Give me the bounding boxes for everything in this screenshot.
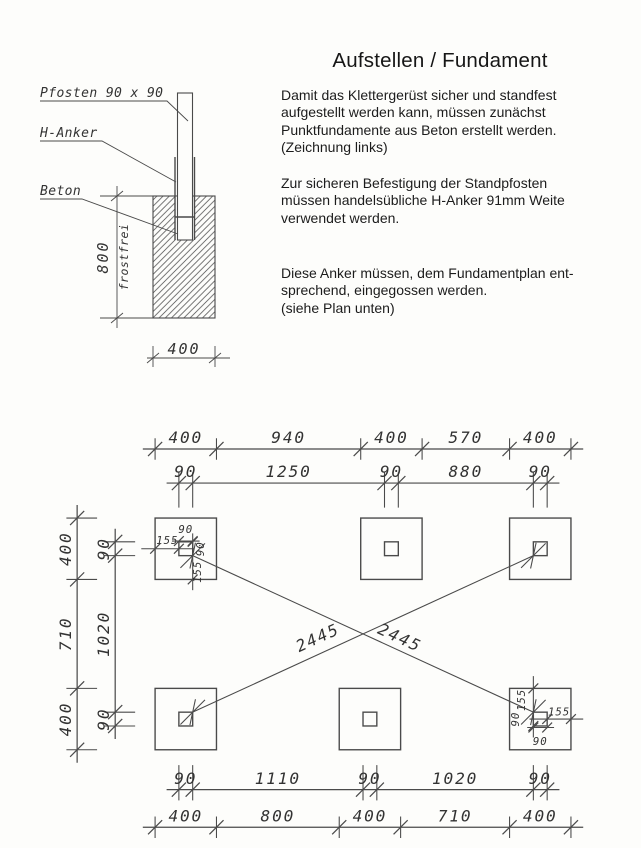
leader-post xyxy=(40,101,188,121)
dim-row-bottom-outer: 400800400710400 xyxy=(143,806,583,838)
anchor-square xyxy=(385,542,399,556)
anchor-square xyxy=(363,712,377,726)
manual-page: Aufstellen / Fundament Damit das Kletter… xyxy=(0,0,641,848)
post-label: Pfosten 90 x 90 xyxy=(40,86,163,101)
dim-label: 400 xyxy=(56,702,75,737)
foundation-plan: 4009404005704009012509088090901110901020… xyxy=(40,408,640,848)
dim-label: 1250 xyxy=(266,462,312,481)
leader-anchor xyxy=(40,141,176,182)
diagonal-dim-label: 2445 xyxy=(293,619,343,656)
dim-label: 570 xyxy=(449,428,484,447)
dim-label: 90 xyxy=(174,462,197,481)
dim-label: 400 xyxy=(168,428,203,447)
depth-dim-label: 800 xyxy=(94,240,112,273)
dim-label: 90 xyxy=(509,712,522,727)
dim-label: 400 xyxy=(374,428,409,447)
elevation-drawing: Pfosten 90 x 90 H-Anker Beton 800 frostf… xyxy=(30,75,250,375)
dim-row-top-anchor: 9012509088090 xyxy=(167,462,560,507)
dim-col-left-outer: 400710400 xyxy=(56,505,97,763)
foundation-square xyxy=(339,688,400,749)
dim-label: 1110 xyxy=(255,769,301,788)
post xyxy=(178,93,193,240)
dim-label: 90 xyxy=(174,769,197,788)
dim-label: 400 xyxy=(353,806,388,825)
dim-label: 400 xyxy=(523,806,558,825)
dim-label: 880 xyxy=(449,462,484,481)
dim-label: 800 xyxy=(261,806,296,825)
dim-row-bottom-anchor: 90111090102090 xyxy=(167,765,560,800)
dim-label: 710 xyxy=(56,617,75,652)
dim-label: 155 xyxy=(191,561,204,583)
diagonals: 24452445 xyxy=(180,543,545,725)
dim-label: 155 xyxy=(156,534,178,547)
page-title: Aufstellen / Fundament xyxy=(280,49,600,73)
dim-label: 400 xyxy=(523,428,558,447)
dim-label: 90 xyxy=(358,769,381,788)
dim-label: 400 xyxy=(56,531,75,566)
dim-label: 90 xyxy=(194,541,207,556)
dim-label: 90 xyxy=(380,462,403,481)
dim-label: 940 xyxy=(271,428,306,447)
dim-label: 400 xyxy=(168,806,203,825)
paragraph-anchor-info: Zur sicheren Befestigung der Standpfoste… xyxy=(281,175,593,227)
dim-label: 90 xyxy=(94,708,113,731)
dim-label: 1020 xyxy=(432,769,478,788)
concrete-label: Beton xyxy=(40,184,81,199)
dim-label: 1020 xyxy=(94,611,113,657)
paragraph-plan-reference: Diese Anker müssen, dem Fundamentplan en… xyxy=(281,265,593,317)
dim-label: 90 xyxy=(94,537,113,560)
dim-col-left-anchor: 90102090 xyxy=(94,529,135,739)
frostfrei-note: frostfrei xyxy=(117,224,131,291)
width-dim-label: 400 xyxy=(167,340,200,358)
foundation-square xyxy=(361,518,422,579)
dim-row-top-outer: 400940400570400 xyxy=(143,428,583,460)
dim-label: 155 xyxy=(515,689,528,711)
dim-label: 710 xyxy=(438,806,473,825)
dim-label: 90 xyxy=(178,523,193,536)
dim-label: 90 xyxy=(529,769,552,788)
dim-label: 90 xyxy=(529,462,552,481)
paragraph-foundation-intro: Damit das Klettergerüst sicher und stand… xyxy=(281,87,593,156)
anchor-label: H-Anker xyxy=(39,126,98,141)
dim-label: 90 xyxy=(533,735,548,748)
dim-label: 155 xyxy=(548,706,570,719)
